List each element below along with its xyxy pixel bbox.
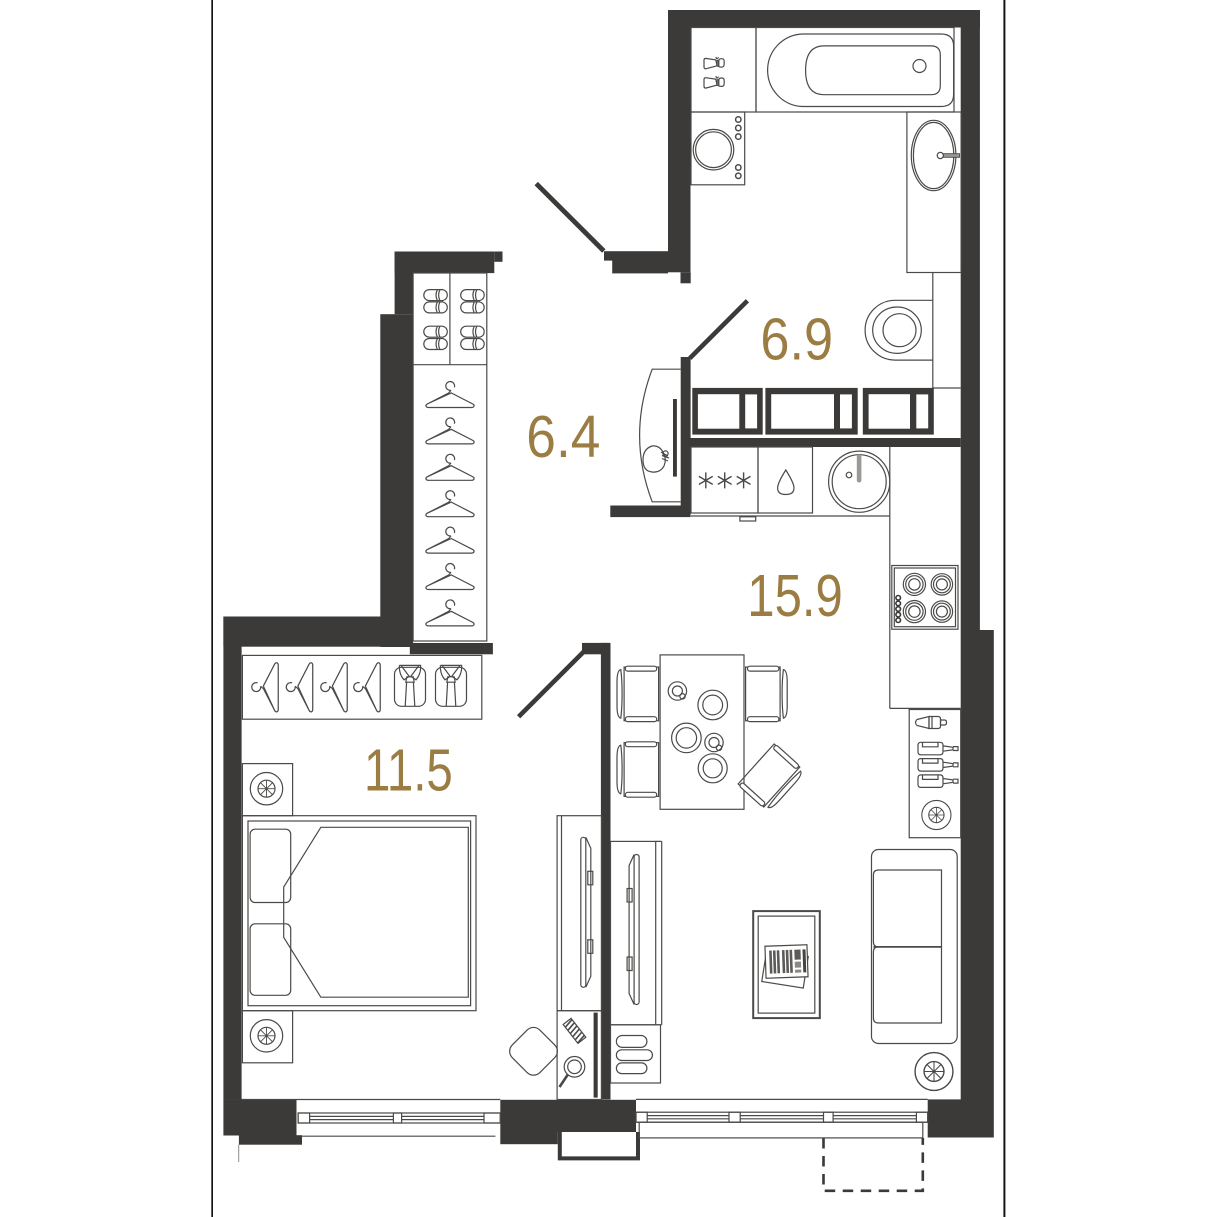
svg-text:6.9: 6.9 — [760, 307, 833, 373]
svg-text:6.4: 6.4 — [526, 404, 600, 470]
svg-text:11.5: 11.5 — [364, 738, 453, 804]
svg-text:15.9: 15.9 — [747, 563, 843, 629]
